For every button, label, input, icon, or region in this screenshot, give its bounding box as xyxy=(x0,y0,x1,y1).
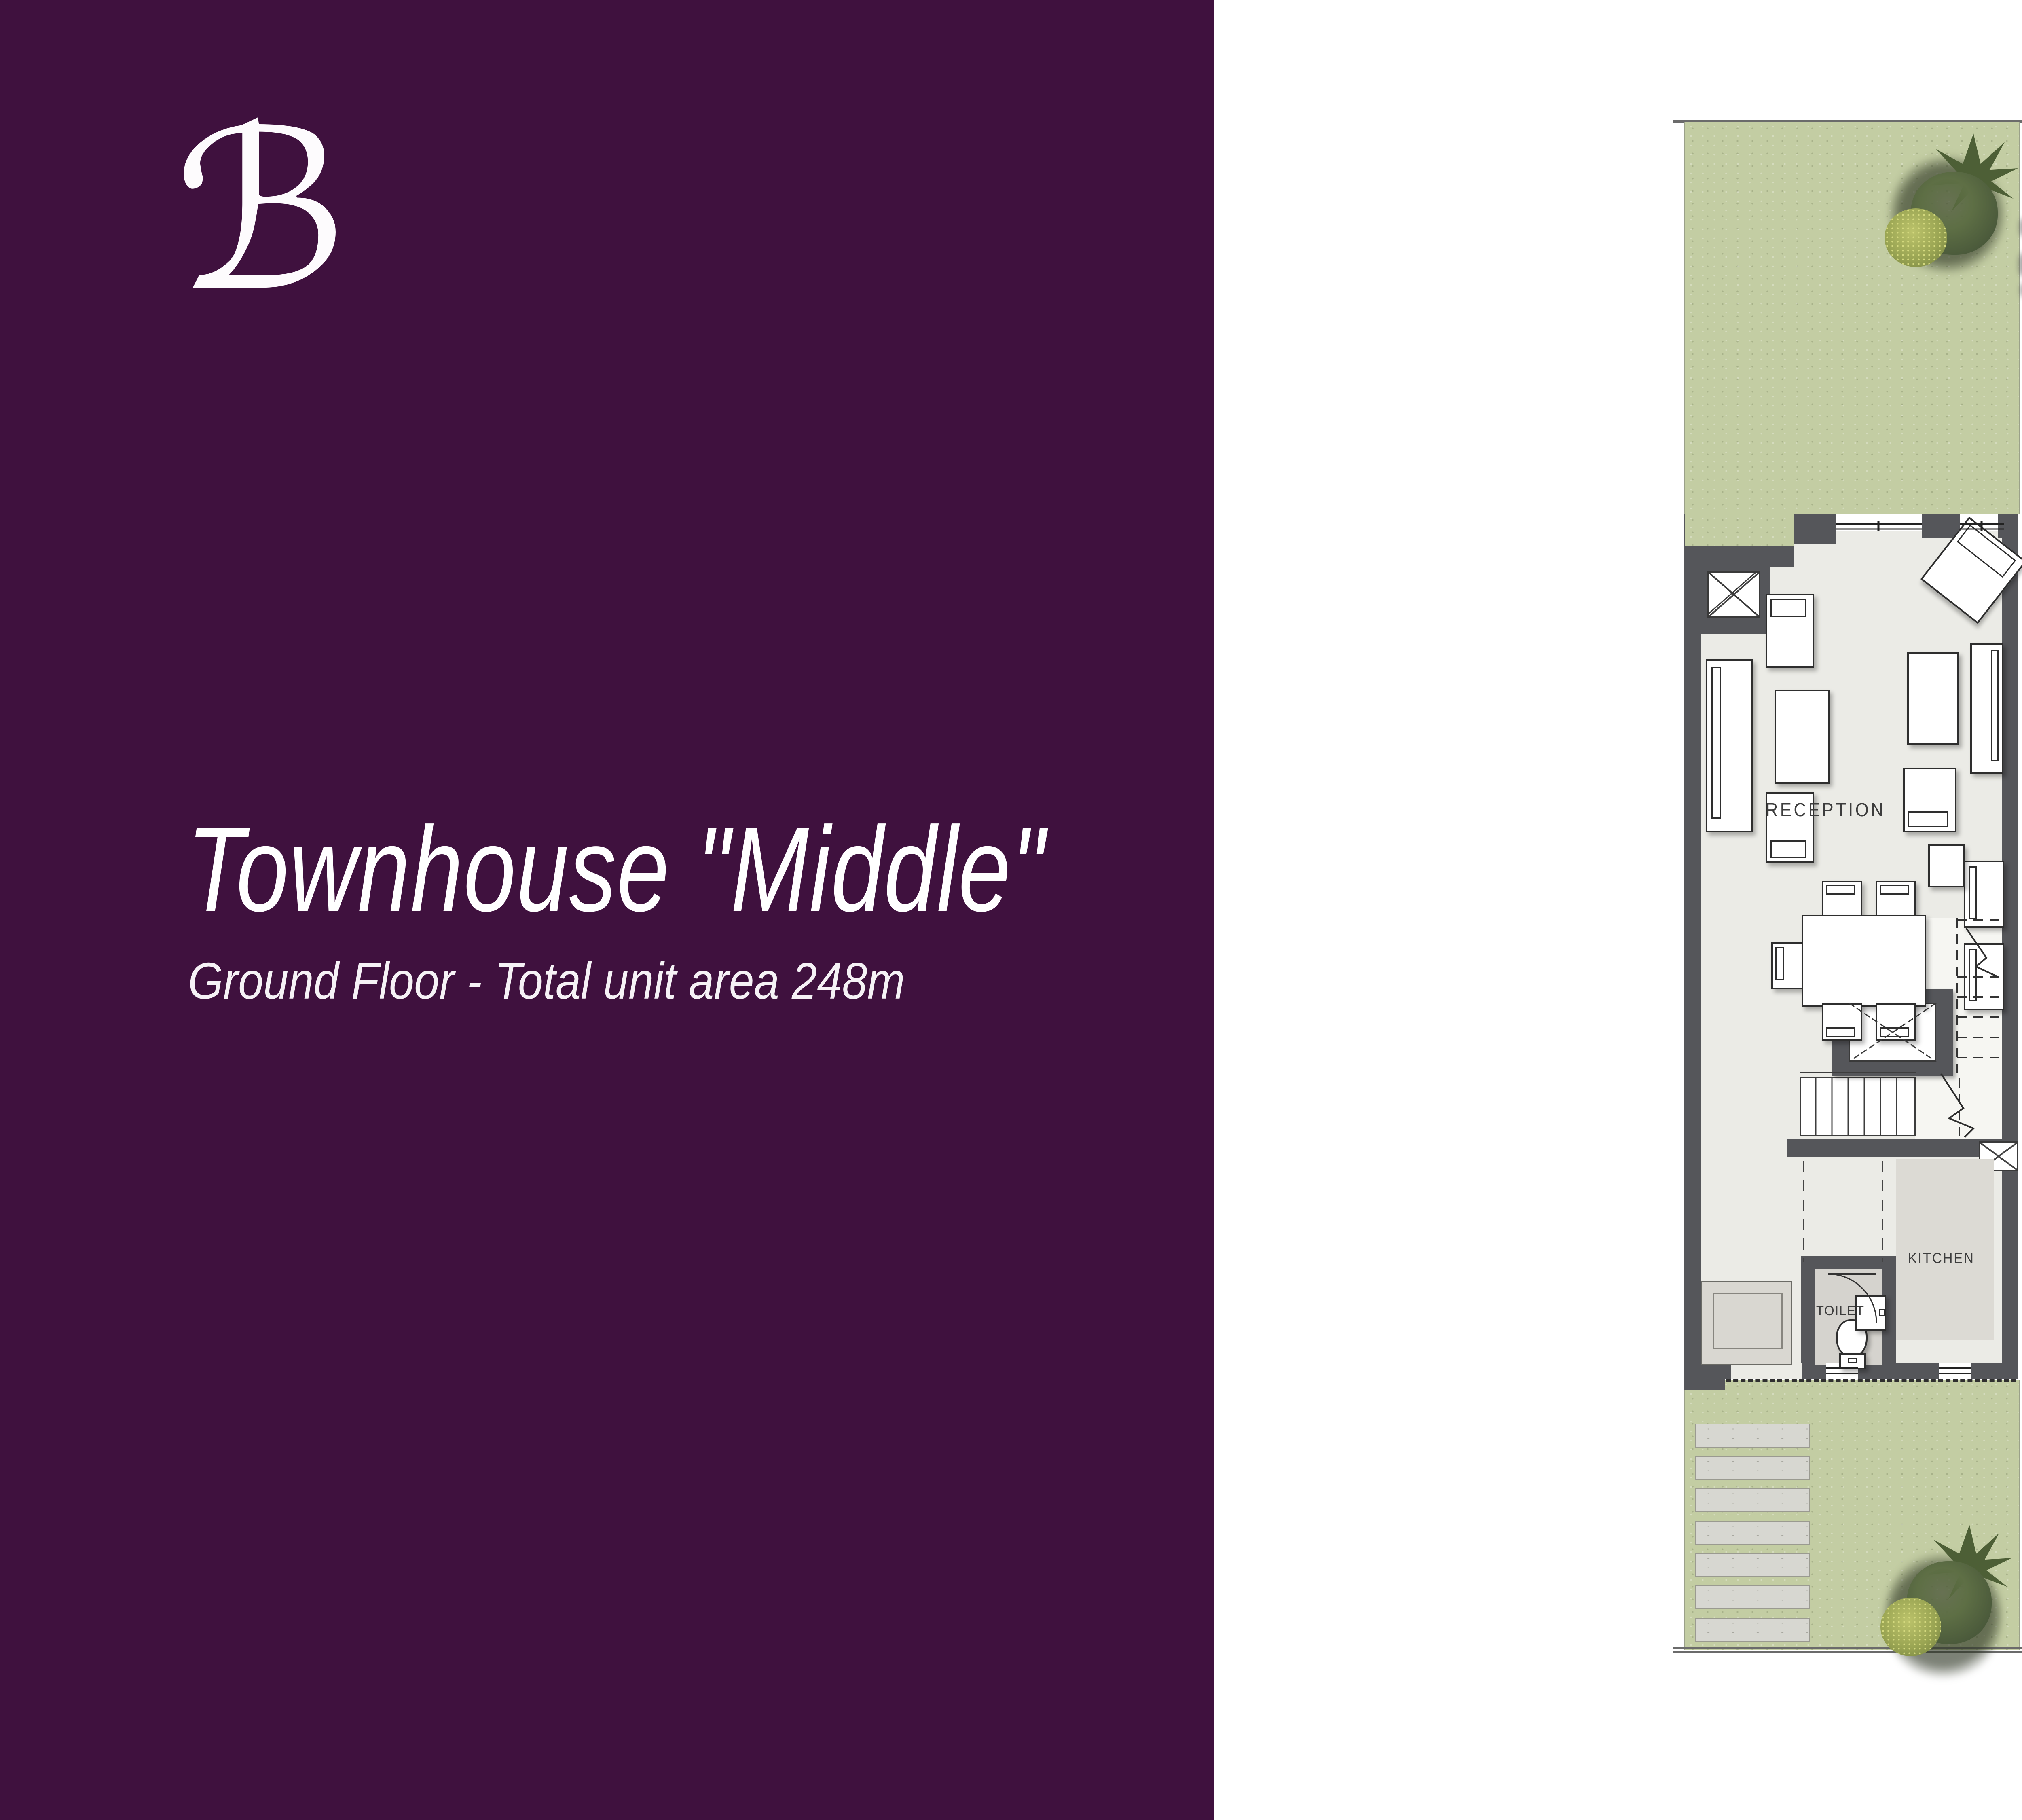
page: ℬ Townhouse "Middle" Ground Floor - Tota… xyxy=(0,0,2022,1820)
sidebar: ℬ Townhouse "Middle" Ground Floor - Tota… xyxy=(0,0,1214,1820)
plan-linework xyxy=(1684,514,2018,1379)
porch-side-wall xyxy=(1684,1379,1725,1390)
garden-paver xyxy=(1695,1585,1810,1609)
margin-mark xyxy=(2020,283,2022,297)
garden-paver xyxy=(1695,1618,1810,1642)
garden-paver xyxy=(1695,1424,1810,1448)
margin-mark xyxy=(2020,218,2022,236)
tree xyxy=(1872,133,2018,291)
garden-paver xyxy=(1695,1553,1810,1577)
garden-paver xyxy=(1695,1488,1810,1512)
toilet-label: TOILET xyxy=(1800,1303,1880,1319)
kitchen-label: KITCHEN xyxy=(1897,1250,1986,1267)
garden-paver xyxy=(1695,1456,1810,1480)
page-title: Townhouse "Middle" xyxy=(187,800,1045,939)
reception-label: RECEPTION xyxy=(1751,799,1900,821)
garden-paver xyxy=(1695,1521,1810,1545)
brand-logo-icon: ℬ xyxy=(174,101,347,322)
tree xyxy=(1866,1525,2012,1695)
page-subtitle: Ground Floor - Total unit area 248m xyxy=(188,951,905,1010)
property-dashed-line xyxy=(1726,1379,2016,1382)
